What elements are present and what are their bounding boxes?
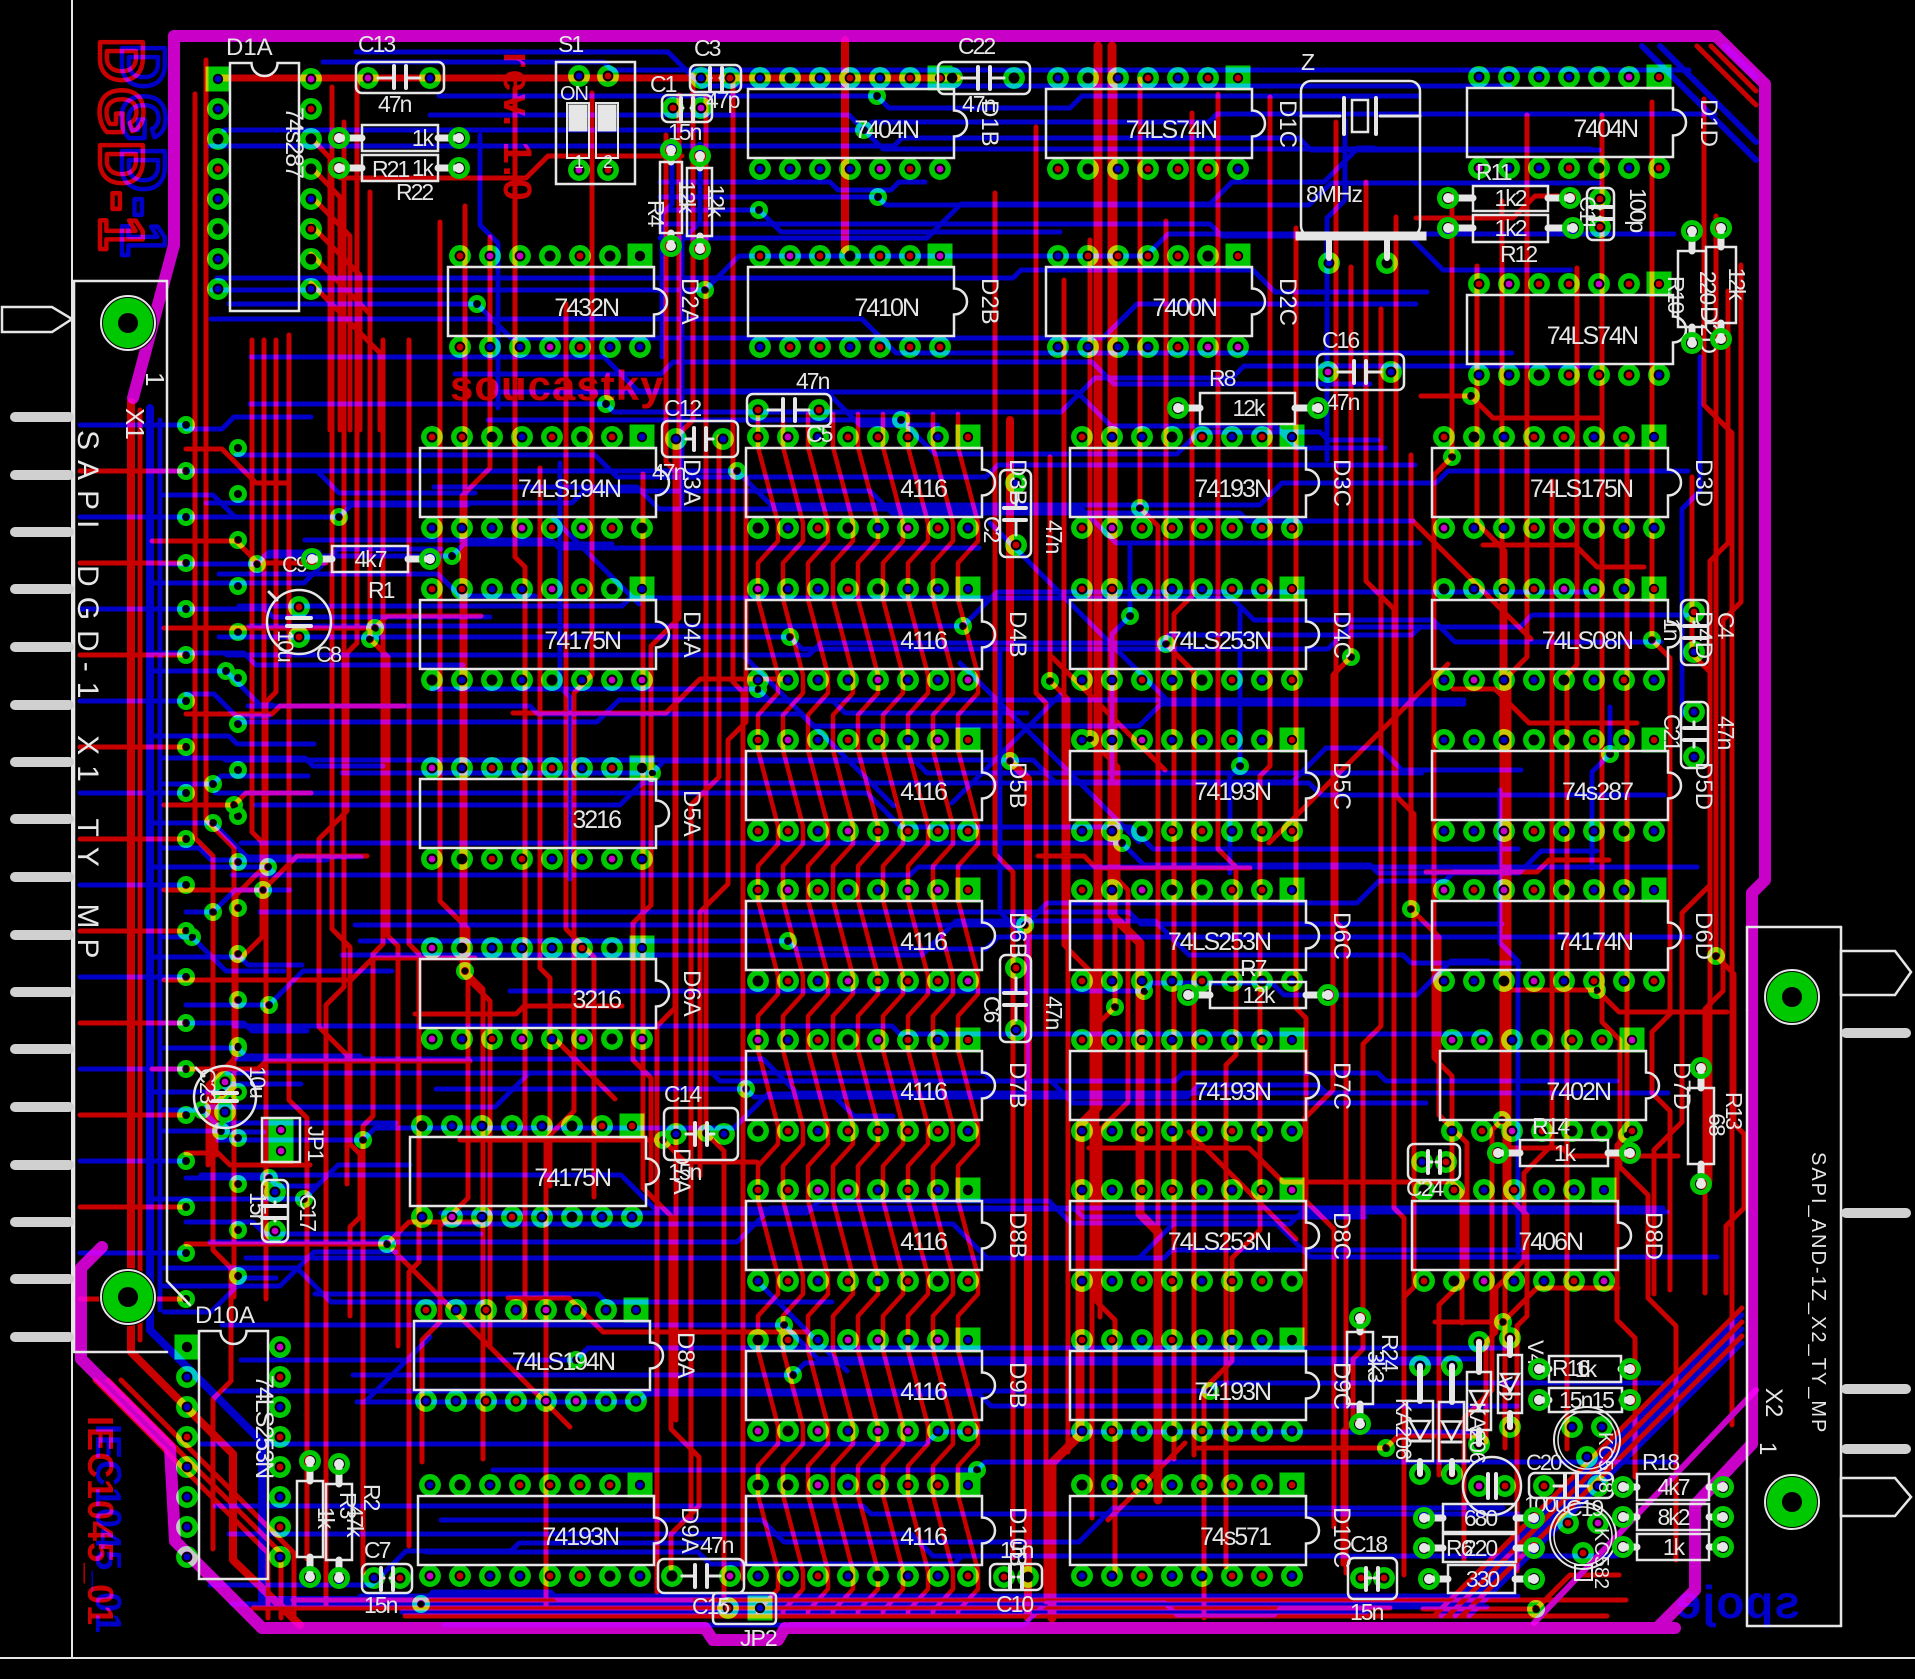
svg-text:R6: R6 — [1446, 1535, 1473, 1561]
svg-text:4116: 4116 — [900, 1378, 947, 1406]
svg-text:10u: 10u — [273, 630, 298, 661]
svg-text:3216: 3216 — [572, 806, 621, 834]
svg-text:74193N: 74193N — [1194, 778, 1271, 806]
svg-text:74s571: 74s571 — [1200, 1523, 1271, 1551]
svg-text:C4: C4 — [1713, 612, 1739, 640]
svg-text:7402N: 7402N — [1546, 1078, 1611, 1106]
svg-text:SAPI_DGD-1_X1_TY_MP: SAPI_DGD-1_X1_TY_MP — [71, 430, 104, 968]
svg-text:47n: 47n — [1713, 716, 1739, 750]
svg-text:C23: C23 — [195, 1068, 220, 1104]
svg-text:IEC1045_01: IEC1045_01 — [80, 1416, 121, 1626]
svg-text:KA206: KA206 — [1391, 1398, 1416, 1460]
svg-text:74LS74N: 74LS74N — [1126, 116, 1217, 144]
svg-text:8k2: 8k2 — [1657, 1504, 1689, 1530]
svg-text:47n: 47n — [796, 368, 830, 394]
svg-text:12k: 12k — [703, 184, 729, 218]
svg-text:soucastky: soucastky — [450, 362, 664, 409]
svg-text:R18: R18 — [1642, 1449, 1679, 1475]
svg-text:D2C: D2C — [1274, 278, 1301, 326]
svg-text:D8B: D8B — [1004, 1212, 1031, 1259]
svg-text:74LS253N: 74LS253N — [1168, 928, 1271, 956]
svg-text:74LS253N: 74LS253N — [1168, 1228, 1271, 1256]
svg-text:1n: 1n — [1659, 618, 1685, 641]
svg-text:C2: C2 — [979, 516, 1005, 543]
svg-text:74193N: 74193N — [1194, 475, 1271, 503]
svg-text:JP1: JP1 — [303, 1126, 328, 1162]
svg-text:330: 330 — [1466, 1566, 1500, 1592]
svg-text:D8D: D8D — [1640, 1212, 1667, 1260]
svg-text:C7: C7 — [364, 1537, 391, 1563]
svg-text:D9B: D9B — [1004, 1362, 1031, 1409]
svg-text:D4A: D4A — [678, 611, 705, 658]
svg-text:D4C: D4C — [1328, 611, 1355, 659]
svg-text:220: 220 — [1695, 271, 1721, 305]
svg-text:C14: C14 — [664, 1081, 702, 1107]
svg-text:C21: C21 — [1659, 714, 1685, 751]
svg-text:C5: C5 — [806, 421, 833, 447]
svg-text:74193N: 74193N — [542, 1523, 619, 1551]
svg-text:7404N: 7404N — [854, 116, 919, 144]
svg-text:12k: 12k — [1724, 267, 1750, 301]
svg-text:47n: 47n — [700, 1532, 734, 1558]
svg-text:D8A: D8A — [672, 1332, 699, 1379]
svg-text:74s287: 74s287 — [1562, 778, 1633, 806]
svg-text:KC582: KC582 — [1590, 1528, 1612, 1589]
svg-text:7400N: 7400N — [1152, 294, 1217, 322]
svg-text:D5A: D5A — [678, 790, 705, 837]
svg-text:1k: 1k — [412, 125, 435, 151]
svg-text:C13: C13 — [358, 31, 395, 57]
svg-text:12k: 12k — [1232, 395, 1266, 421]
svg-text:74LS194N: 74LS194N — [512, 1348, 615, 1376]
svg-text:4k7: 4k7 — [1657, 1474, 1689, 1500]
svg-text:D6C: D6C — [1328, 912, 1355, 960]
svg-text:4116: 4116 — [900, 778, 947, 806]
svg-text:R12: R12 — [1500, 241, 1537, 267]
svg-text:1: 1 — [574, 152, 584, 172]
svg-text:R16: R16 — [1552, 1355, 1589, 1381]
svg-text:12k: 12k — [1242, 982, 1276, 1008]
svg-text:R3: R3 — [335, 1492, 361, 1519]
svg-text:D8C: D8C — [1328, 1212, 1355, 1260]
svg-text:7432N: 7432N — [554, 294, 619, 322]
svg-text:JP2: JP2 — [740, 1625, 777, 1651]
svg-text:C18: C18 — [1350, 1531, 1387, 1557]
svg-text:C15: C15 — [692, 1593, 729, 1619]
svg-text:74174N: 74174N — [1556, 928, 1633, 956]
svg-text:1k2: 1k2 — [1494, 215, 1526, 241]
svg-text:15n: 15n — [668, 1159, 702, 1185]
svg-text:D2B: D2B — [976, 278, 1003, 325]
svg-text:R13: R13 — [1721, 1092, 1747, 1129]
svg-text:74193N: 74193N — [1194, 1078, 1271, 1106]
svg-text:D6D: D6D — [1690, 912, 1717, 960]
svg-text:R14: R14 — [1532, 1113, 1570, 1139]
svg-text:47n: 47n — [1041, 520, 1067, 554]
svg-text:X1: X1 — [120, 408, 150, 440]
svg-text:15n: 15n — [245, 1192, 271, 1226]
svg-text:D6A: D6A — [678, 970, 705, 1017]
svg-text:74s287: 74s287 — [280, 107, 308, 178]
svg-text:S1: S1 — [558, 31, 583, 57]
svg-text:15n: 15n — [364, 1592, 398, 1618]
svg-text:R8: R8 — [1209, 365, 1236, 391]
svg-text:D7B: D7B — [1004, 1062, 1031, 1109]
svg-text:74175N: 74175N — [544, 627, 621, 655]
svg-text:1: 1 — [140, 372, 170, 386]
svg-text:D3C: D3C — [1328, 459, 1355, 507]
svg-text:15n: 15n — [1000, 1537, 1034, 1563]
svg-text:2: 2 — [603, 152, 613, 172]
svg-text:4116: 4116 — [900, 928, 947, 956]
svg-text:3216: 3216 — [572, 986, 621, 1014]
svg-text:R22: R22 — [396, 179, 433, 205]
svg-text:D9A: D9A — [676, 1507, 703, 1554]
svg-text:D6B: D6B — [1004, 912, 1031, 959]
svg-text:R10: R10 — [1663, 276, 1689, 313]
svg-text:7410N: 7410N — [854, 294, 919, 322]
svg-text:D3D: D3D — [1690, 459, 1717, 507]
svg-text:15n: 15n — [1350, 1599, 1384, 1625]
svg-text:C17: C17 — [295, 1194, 321, 1231]
svg-text:4k7: 4k7 — [354, 546, 386, 572]
svg-text:74LS253N: 74LS253N — [250, 1375, 278, 1478]
svg-text:D5B: D5B — [1004, 762, 1031, 809]
svg-text:R11: R11 — [1476, 159, 1512, 185]
svg-text:C1: C1 — [650, 71, 677, 97]
svg-text:1: 1 — [1754, 1442, 1781, 1455]
svg-text:8MHz: 8MHz — [1306, 181, 1363, 207]
svg-text:7406N: 7406N — [1518, 1228, 1583, 1256]
svg-text:R1: R1 — [368, 577, 395, 603]
svg-text:7404N: 7404N — [1573, 115, 1638, 143]
svg-text:4116: 4116 — [900, 1078, 947, 1106]
svg-text:D10A: D10A — [195, 1302, 255, 1329]
svg-text:D1C: D1C — [1274, 100, 1301, 148]
svg-text:1k: 1k — [412, 155, 435, 181]
svg-text:R4: R4 — [643, 200, 669, 228]
svg-text:C10: C10 — [996, 1591, 1033, 1617]
svg-text:15n15: 15n15 — [1559, 1387, 1614, 1413]
svg-text:74LS08N: 74LS08N — [1542, 627, 1633, 655]
svg-text:D5C: D5C — [1328, 762, 1355, 810]
svg-text:1k2: 1k2 — [1494, 185, 1526, 211]
svg-text:47n: 47n — [652, 459, 686, 485]
svg-text:74LS194N: 74LS194N — [518, 475, 621, 503]
svg-text:C8: C8 — [316, 642, 342, 667]
svg-text:Z: Z — [1301, 49, 1315, 75]
svg-text:47n: 47n — [962, 91, 996, 117]
svg-text:680: 680 — [1464, 1505, 1498, 1531]
svg-text:74LS175N: 74LS175N — [1530, 475, 1633, 503]
svg-text:R2: R2 — [359, 1484, 385, 1511]
svg-text:DGD-1: DGD-1 — [86, 38, 155, 256]
svg-text:100p: 100p — [1625, 188, 1651, 232]
svg-text:74LS253N: 74LS253N — [1168, 627, 1271, 655]
svg-text:47n: 47n — [1041, 996, 1067, 1030]
svg-text:C24: C24 — [1406, 1175, 1444, 1201]
svg-text:D4B: D4B — [1004, 611, 1031, 658]
svg-text:1k: 1k — [1554, 1140, 1577, 1166]
svg-text:R24: R24 — [1377, 1334, 1403, 1372]
svg-text:4116: 4116 — [900, 475, 947, 503]
svg-text:D7C: D7C — [1328, 1062, 1355, 1110]
svg-text:74175N: 74175N — [534, 1164, 611, 1192]
svg-text:D1D: D1D — [1695, 99, 1722, 147]
svg-text:ON: ON — [560, 83, 588, 105]
svg-text:D1A: D1A — [226, 34, 273, 61]
svg-text:74LS74N: 74LS74N — [1547, 322, 1638, 350]
svg-text:SAPI_AND-1Z_X2_TY_MP: SAPI_AND-1Z_X2_TY_MP — [1807, 1152, 1829, 1434]
svg-text:C3: C3 — [694, 35, 721, 61]
svg-text:4116: 4116 — [900, 1228, 947, 1256]
svg-text:C22: C22 — [958, 33, 995, 59]
svg-text:C19: C19 — [1566, 1495, 1603, 1521]
svg-text:10u: 10u — [245, 1066, 270, 1097]
svg-text:C12: C12 — [664, 395, 701, 421]
svg-text:D4D: D4D — [1690, 611, 1717, 659]
svg-text:X2: X2 — [1760, 1388, 1787, 1417]
svg-text:D2A: D2A — [676, 278, 703, 325]
svg-text:C16: C16 — [1322, 327, 1359, 353]
svg-text:74193N: 74193N — [1194, 1378, 1271, 1406]
svg-text:1k: 1k — [1663, 1534, 1686, 1560]
svg-text:4116: 4116 — [900, 1523, 947, 1551]
svg-text:47n: 47n — [378, 91, 412, 117]
svg-text:4116: 4116 — [900, 627, 947, 655]
svg-text:R7: R7 — [1240, 955, 1267, 981]
svg-text:C6: C6 — [979, 996, 1005, 1023]
svg-text:47n: 47n — [1326, 389, 1360, 415]
